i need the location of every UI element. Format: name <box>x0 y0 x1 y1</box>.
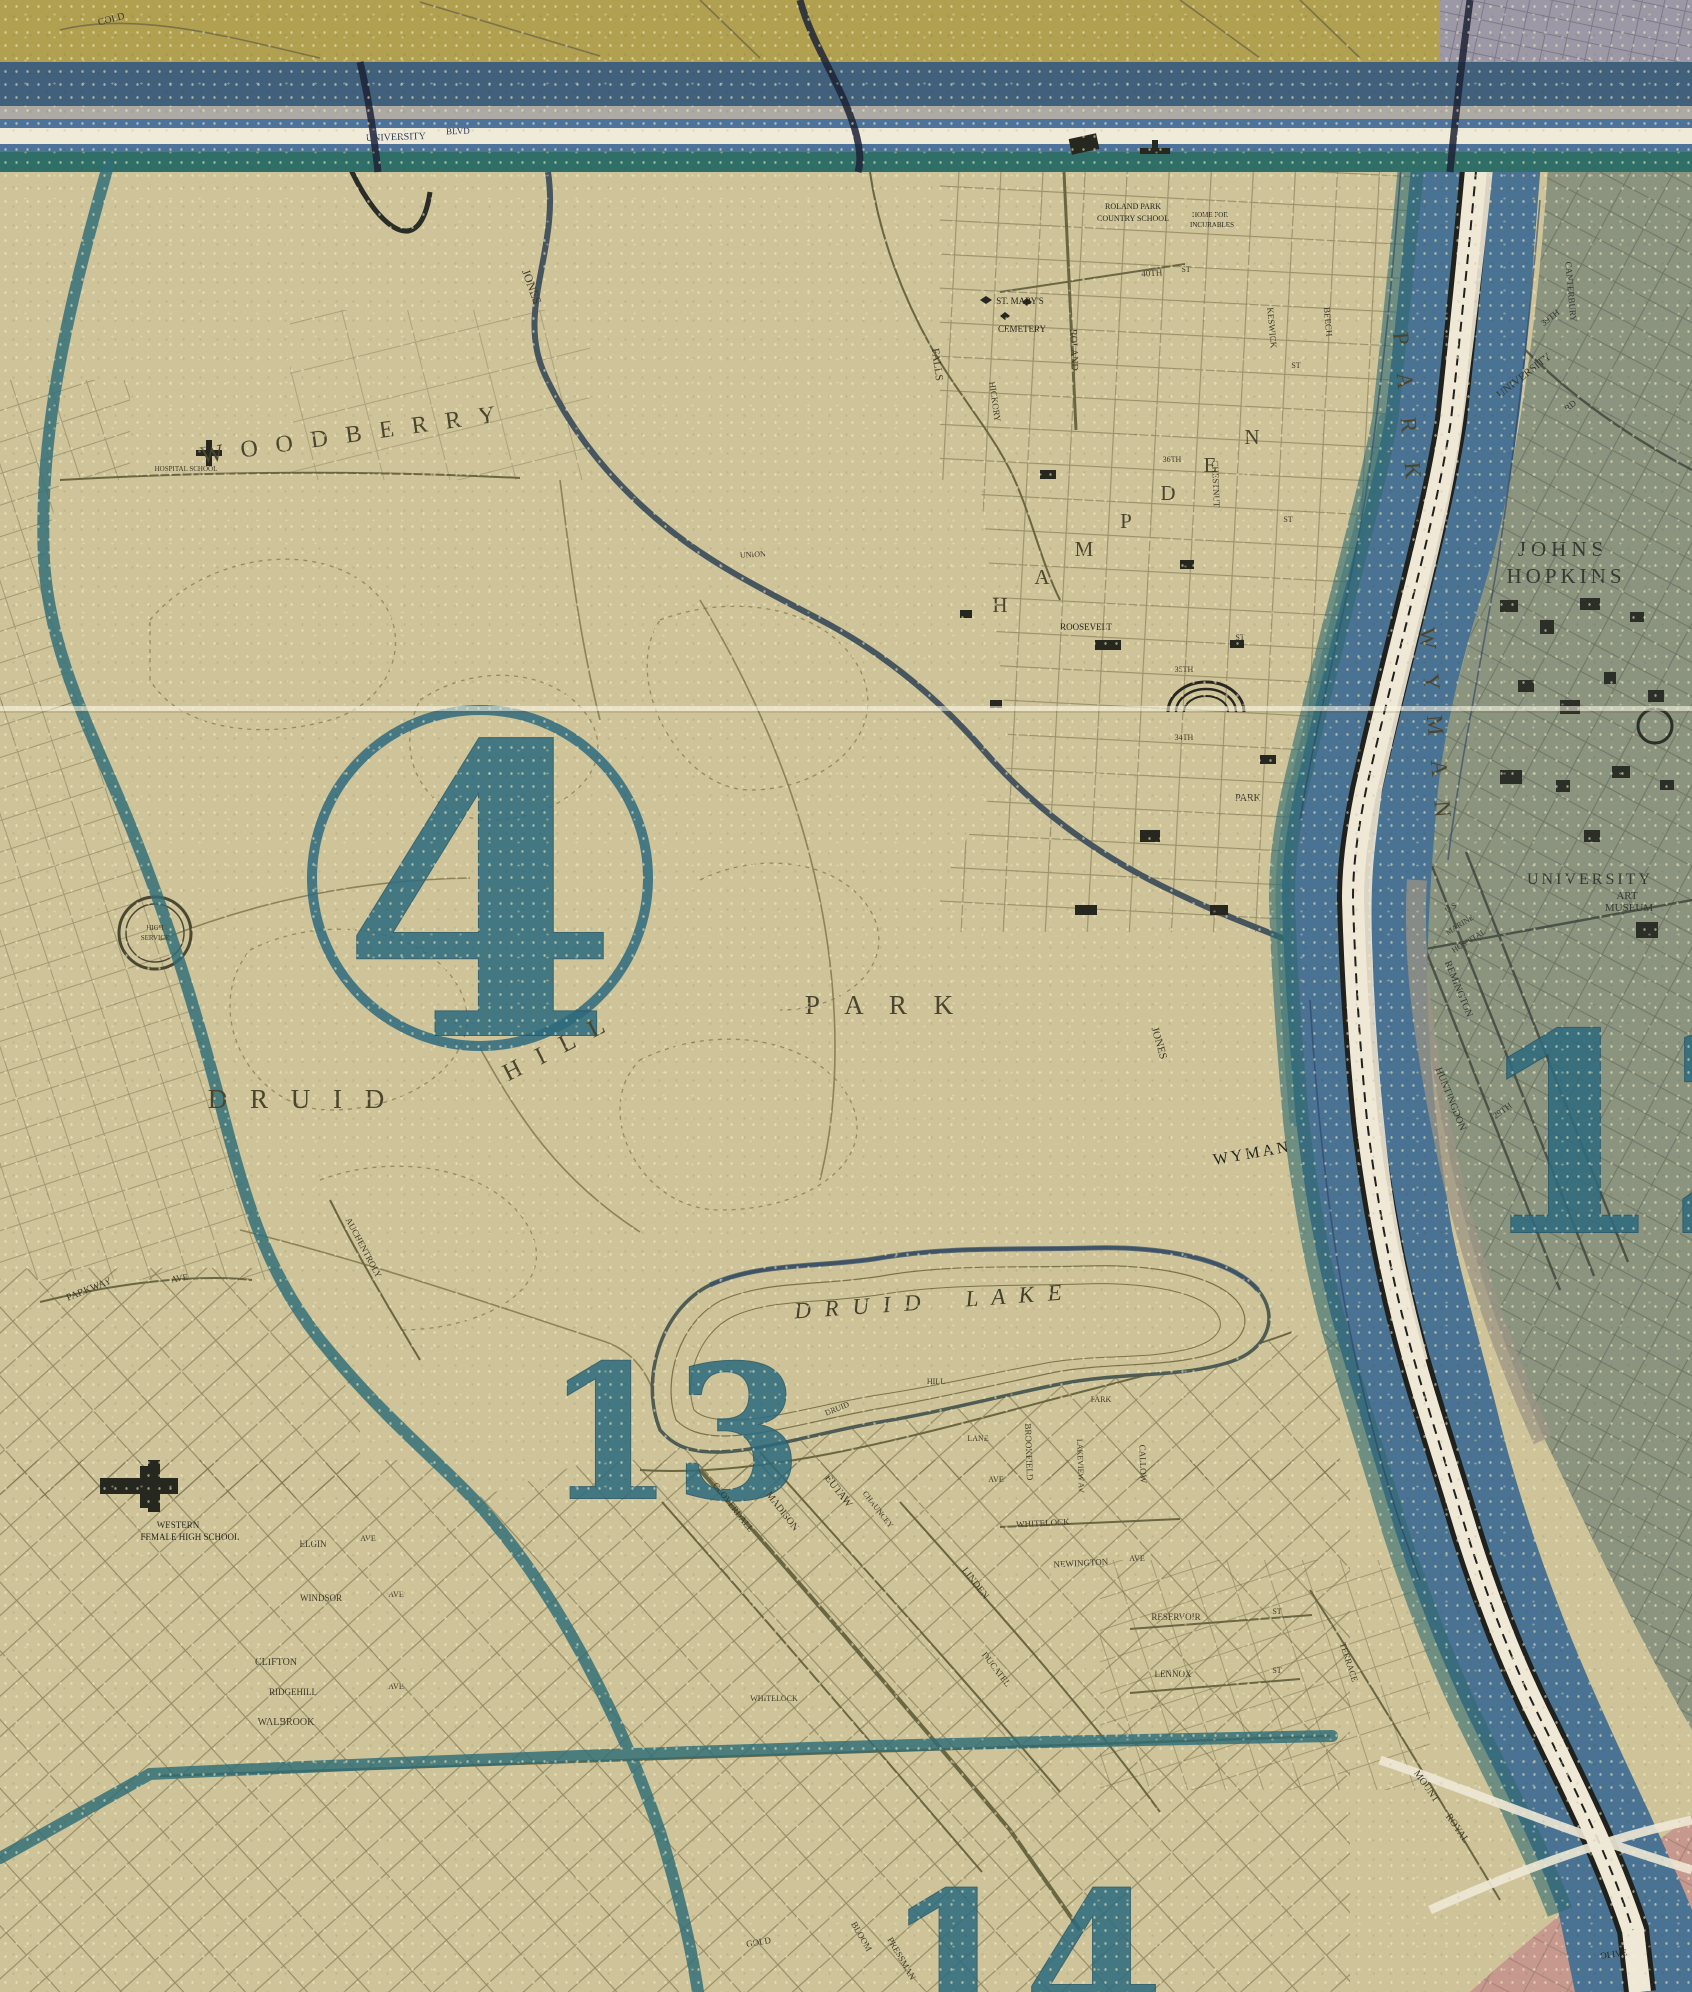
area-letter-hampden-m: M <box>1075 537 1094 561</box>
street-label-union: UNION <box>740 549 766 559</box>
street-label-34th: 34TH <box>1175 733 1194 742</box>
street-label-hill-small: HILL <box>927 1377 945 1386</box>
area-letter-hampden-h: H <box>992 593 1007 617</box>
street-label-35th: 35TH <box>1175 665 1194 674</box>
street-label-lakeview: LAKEVIEW AV <box>1075 1439 1086 1494</box>
area-letter-hampden-p: P <box>1120 509 1132 533</box>
district-number-14: 14 <box>885 1849 1163 1992</box>
district-number-13: 13 <box>545 1324 802 1542</box>
street-label-callow: CALLOW <box>1137 1444 1148 1483</box>
street-label-brookfield: BROOKFIELD <box>1023 1423 1035 1481</box>
street-label-lane: LANE <box>967 1434 988 1443</box>
street-label-st-2: ST <box>1291 361 1300 370</box>
fold-crease <box>0 706 1692 713</box>
street-label-roland: ROLAND <box>1067 329 1079 371</box>
street-label-reservoir: RESERVOIR <box>1151 1612 1200 1622</box>
place-label-home-for: HOME FOR <box>1192 211 1228 219</box>
place-label-roland-park-school-1: ROLAND PARK <box>1105 202 1161 211</box>
district-number-12: 12 <box>1474 974 1692 1297</box>
street-label-newington-ave: AVE <box>1129 1554 1145 1563</box>
place-label-high-service-2: SERVICE <box>141 934 170 942</box>
area-label-hopkins: HOPKINS <box>1506 564 1625 588</box>
area-label-museum: MUSEUM <box>1605 902 1654 914</box>
street-label-lennox-st: ST <box>1272 1666 1281 1675</box>
street-label-park-tiny: PARK <box>1091 1395 1112 1404</box>
area-letter-hampden-n: N <box>1244 425 1259 449</box>
street-label-whitelock-2: WHITELOCK <box>750 1694 798 1703</box>
street-label-chestnut: CHESTNUT <box>1210 460 1222 508</box>
district-map-svg: 4131412 W O O D B E R R YD R U I DH I L … <box>0 0 1692 1992</box>
area-label-johns: JOHNS <box>1518 537 1608 561</box>
place-label-high-service-1: HIGH <box>146 924 164 932</box>
area-label-art: ART <box>1616 890 1638 902</box>
place-label-cemetery: CEMETERY <box>998 324 1047 334</box>
street-label-40th: 40TH <box>1141 267 1163 278</box>
street-label-lane-ave: AVE <box>988 1475 1004 1484</box>
district-number-4: 4 <box>341 660 619 1130</box>
street-label-ridgehill: RIDGEHILL <box>269 1687 317 1697</box>
area-label-druid: D R U I D <box>208 1084 393 1114</box>
street-label-ridgehill-ave: AVE <box>388 1682 404 1691</box>
street-label-st-3: ST <box>1283 515 1292 524</box>
street-label-st-1: ST <box>1181 265 1190 274</box>
place-label-incurables: INCURABLES <box>1190 221 1234 229</box>
street-label-windsor: WINDSOR <box>300 1593 342 1603</box>
street-label-elgin: ELGIN <box>300 1539 327 1549</box>
place-label-roosevelt: ROOSEVELT <box>1060 622 1112 632</box>
top-boundary-bands <box>0 0 1692 172</box>
area-letter-hampden-d: D <box>1160 481 1175 505</box>
street-label-elgin-ave: AVE <box>360 1534 376 1543</box>
map-canvas[interactable]: 4131412 W O O D B E R R YD R U I DH I L … <box>0 0 1692 1992</box>
street-label-reservoir-st: ST <box>1272 1607 1281 1616</box>
street-label-windsor-ave: AVE <box>388 1590 404 1599</box>
street-label-st-4: ST <box>1235 633 1244 642</box>
place-label-female-high-school: FEMALE HIGH SCHOOL <box>141 1532 240 1542</box>
street-label-lennox: LENNOX <box>1155 1669 1192 1679</box>
street-label-university-blvd-1: UNIVERSITY <box>366 131 426 144</box>
street-label-clifton: CLIFTON <box>255 1657 297 1668</box>
area-label-university: UNIVERSITY <box>1527 871 1653 888</box>
street-label-36th: 36TH <box>1163 455 1182 464</box>
area-label-park: P A R K <box>805 990 963 1020</box>
place-label-hospital-school: HOSPITAL SCHOOL <box>155 465 218 473</box>
area-letter-hampden-a: A <box>1034 565 1050 589</box>
place-label-roland-park-school-2: COUNTRY SCHOOL <box>1097 214 1169 223</box>
place-label-st-marys: ST. MARY'S <box>996 296 1043 306</box>
street-label-walbrook: WALBROOK <box>258 1717 315 1728</box>
street-label-park-small: PARK <box>1235 793 1262 804</box>
place-label-western: WESTERN <box>157 1520 200 1530</box>
street-label-university-blvd-2: BLVD <box>446 126 471 137</box>
